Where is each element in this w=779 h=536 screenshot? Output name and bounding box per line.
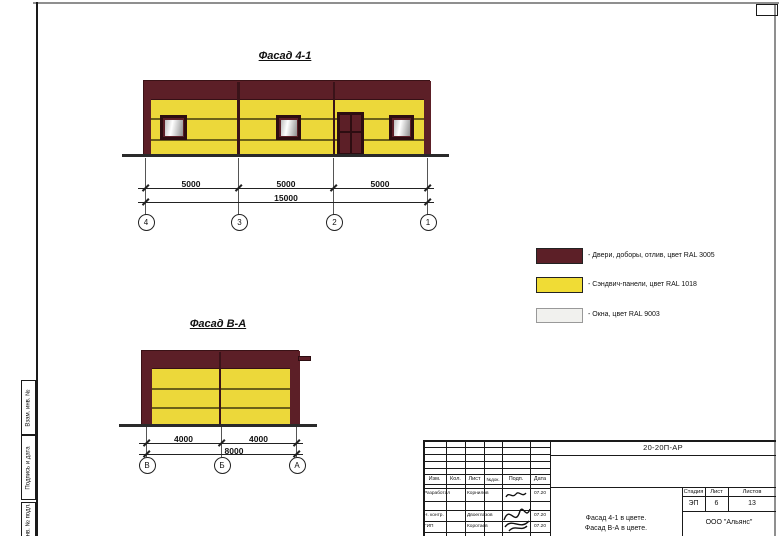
facade-va-elevation	[141, 350, 299, 425]
tb-sheet-number: 6	[705, 500, 728, 507]
tb-col-header: Кол.	[446, 476, 465, 482]
margin-cell-vzam: Взам. инв. №	[21, 380, 36, 435]
tb-stage-header: Стадия	[682, 489, 705, 495]
tb-line	[423, 488, 550, 489]
tb-company: ООО "Альянс"	[682, 519, 776, 526]
tb-subject-line: Фасад В-А в цвете.	[550, 525, 682, 532]
facade-41-elevation	[143, 80, 430, 155]
tb-role: ГИП	[424, 524, 434, 529]
tb-sheets-total: 13	[728, 500, 776, 507]
parapet-band	[144, 81, 431, 100]
corner-strip	[424, 81, 431, 156]
door-rail	[340, 131, 361, 133]
tb-col-header: №док.	[484, 477, 502, 482]
drawing-sheet: Взам. инв. № Подпись и дата Инв. № подл.…	[0, 0, 779, 536]
sheet-top-border	[33, 2, 779, 4]
window-glass	[281, 120, 297, 136]
tb-name: Корнилов	[467, 491, 489, 496]
tb-role: Н. контр.	[424, 513, 444, 518]
tb-date: 07.20	[530, 524, 550, 529]
title-block: 20-20П-АР Изм. Кол. Лист №док. Подп. Дат…	[423, 440, 776, 536]
tb-col-header: Лист	[465, 476, 484, 482]
tb-col-header: Изм.	[423, 476, 446, 482]
signature-icon	[501, 502, 532, 533]
tb-stage-header: Листов	[728, 489, 776, 495]
axis-bubble: А	[289, 457, 306, 474]
facade-va-title: Фасад В-А	[160, 318, 276, 330]
dim-label: 4000	[154, 434, 214, 444]
dim-label: 5000	[350, 179, 410, 189]
axis-bubble: 1	[420, 214, 437, 231]
frame-left-line	[36, 2, 38, 536]
corner-strip	[144, 81, 151, 156]
tb-border	[423, 440, 776, 442]
axis-bubble: Б	[214, 457, 231, 474]
margin-label: Взам. инв. №	[26, 389, 32, 426]
dim-label-total: 8000	[204, 446, 264, 456]
parapet-band	[142, 351, 300, 369]
tb-line	[423, 461, 550, 462]
ground-line	[119, 424, 317, 427]
sheet-corner-box	[756, 4, 778, 16]
tb-line	[423, 484, 550, 485]
dim-label: 4000	[229, 434, 289, 444]
legend-swatch-panels	[536, 277, 583, 293]
window	[276, 115, 301, 140]
corner-strip	[142, 351, 152, 426]
margin-cell-inv: Инв. № подл.	[21, 502, 36, 536]
tb-name: Двоеглазов	[467, 513, 493, 518]
axis-bubble: 4	[138, 214, 155, 231]
legend-label: - Окна, цвет RAL 9003	[588, 311, 660, 318]
door-leaf-divider	[350, 115, 352, 153]
door	[337, 112, 364, 156]
tb-stage-header: Лист	[705, 489, 728, 495]
corner-strip	[290, 351, 300, 426]
margin-label: Подпись и дата	[26, 446, 32, 489]
legend-swatch-doors	[536, 248, 583, 264]
axis-bubble: 3	[231, 214, 248, 231]
tb-line	[682, 496, 776, 497]
tb-stage-value: ЭП	[682, 500, 705, 507]
tb-role: Разработал	[424, 491, 450, 496]
tb-doc-number: 20-20П-АР	[550, 443, 776, 452]
tb-date: 07.20	[530, 513, 550, 518]
window	[389, 115, 414, 140]
axis-bubble: В	[139, 457, 156, 474]
legend-swatch-windows	[536, 308, 583, 323]
margin-cell-podpis: Подпись и дата	[21, 435, 36, 500]
dim-label-total: 15000	[256, 193, 316, 203]
margin-label: Инв. № подл.	[26, 503, 32, 536]
drain-outlet	[298, 356, 311, 361]
ground-line	[122, 154, 449, 157]
tb-line	[550, 455, 776, 456]
tb-date: 07.20	[530, 491, 550, 496]
dim-label: 5000	[161, 179, 221, 189]
panel-joint-line	[151, 388, 291, 390]
panel-joint-line	[151, 407, 291, 409]
tb-line	[423, 474, 550, 475]
dim-label: 5000	[256, 179, 316, 189]
tb-name: Коротаев	[467, 524, 488, 529]
legend-label: - Двери, доборы, отлив, цвет RAL 3005	[588, 252, 715, 259]
tb-subject-line: Фасад 4-1 в цвете.	[550, 515, 682, 522]
tb-col-header: Подп.	[502, 476, 530, 482]
signature-icon	[504, 489, 528, 501]
window-glass	[165, 120, 183, 136]
tb-line	[682, 511, 776, 512]
window	[160, 115, 187, 140]
tb-line	[423, 468, 550, 469]
tb-line	[423, 454, 550, 455]
facade-41-title: Фасад 4-1	[225, 50, 345, 62]
tb-line	[423, 447, 550, 448]
window-glass	[394, 120, 410, 136]
axis-2-seam	[333, 82, 336, 155]
tb-col-header: Дата	[530, 476, 550, 482]
axis-bubble: 2	[326, 214, 343, 231]
legend-label: - Сэндвич-панели, цвет RAL 1018	[588, 281, 697, 288]
axis-3-seam	[237, 82, 240, 155]
axis-b-seam	[219, 352, 222, 425]
